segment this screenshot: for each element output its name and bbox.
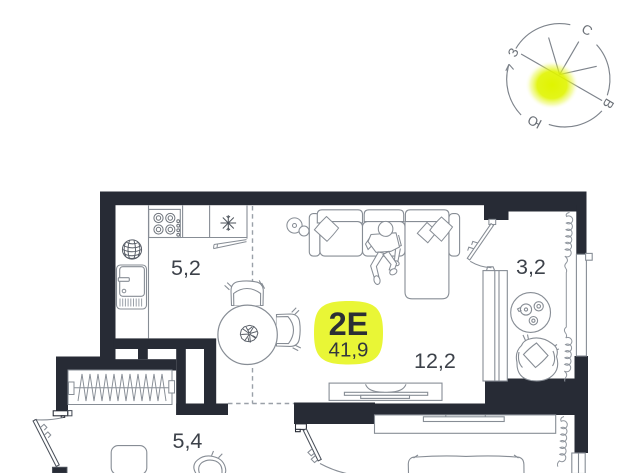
svg-text:3,2: 3,2 [516, 255, 546, 279]
svg-text:5,2: 5,2 [171, 256, 201, 280]
svg-text:41,9: 41,9 [329, 338, 369, 361]
svg-text:2Е: 2Е [329, 306, 369, 342]
svg-text:5,4: 5,4 [173, 429, 203, 453]
svg-text:12,2: 12,2 [414, 349, 456, 373]
